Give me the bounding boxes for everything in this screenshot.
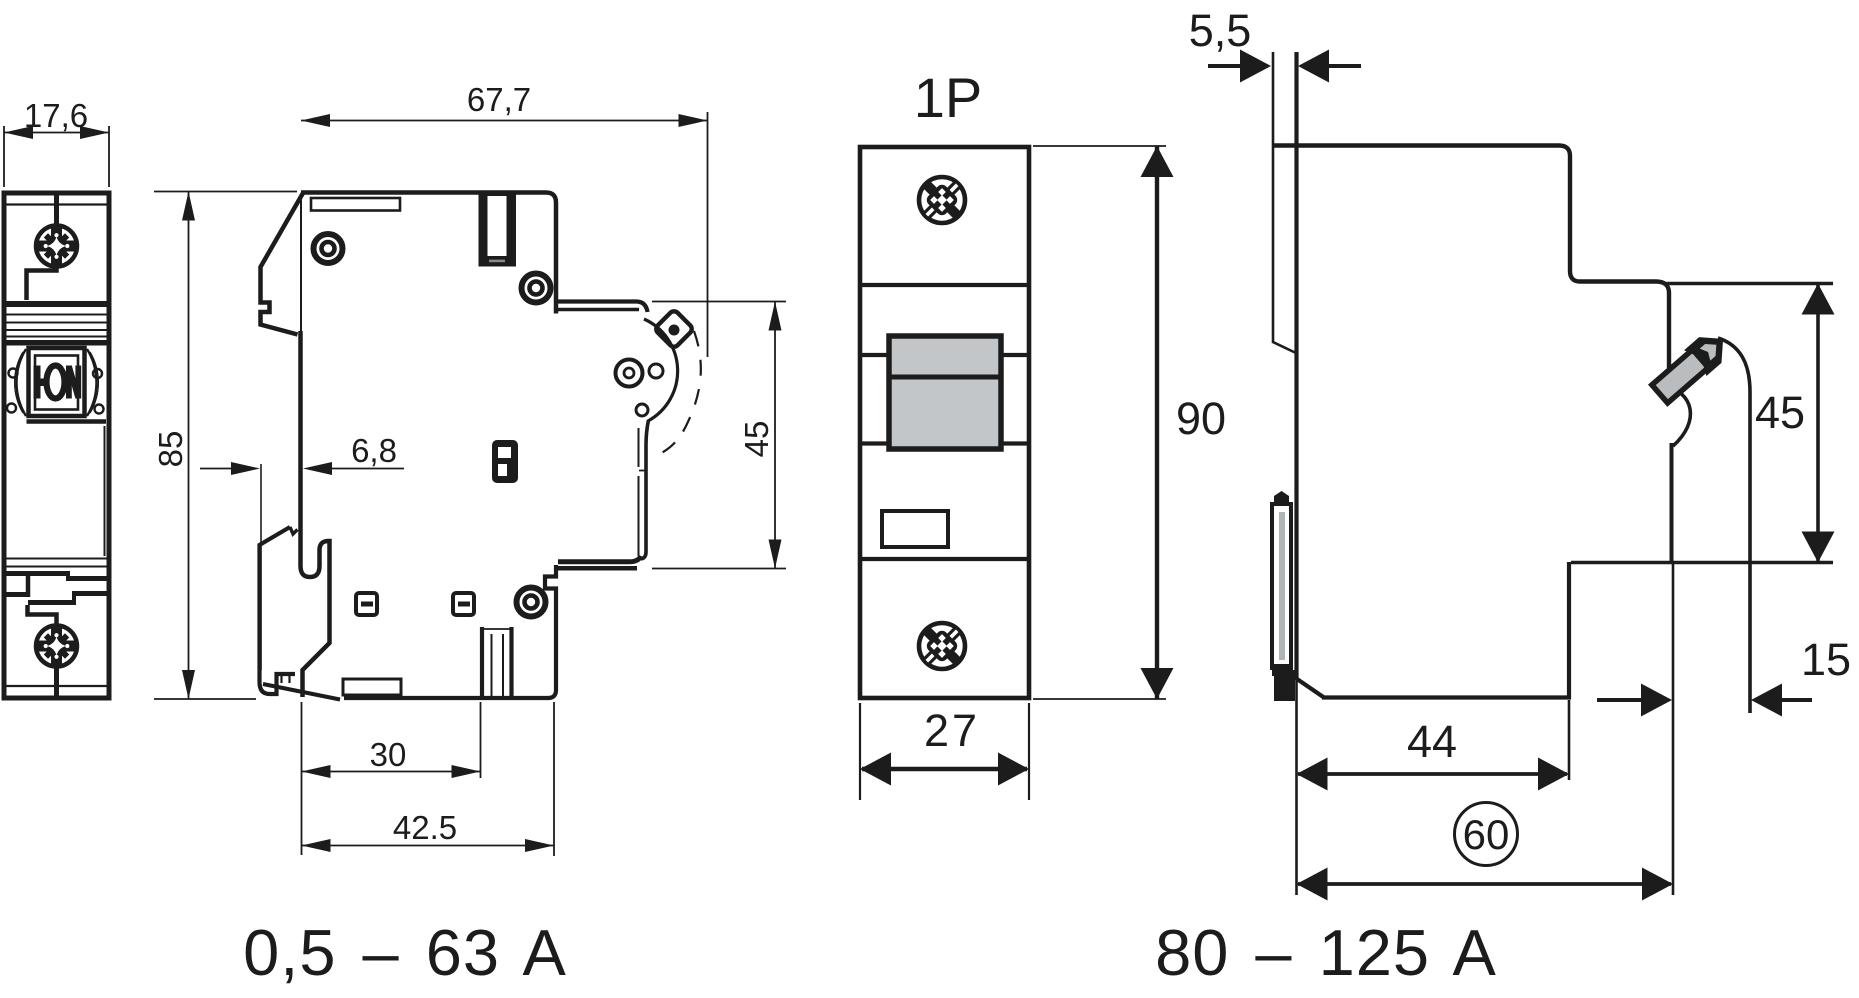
svg-text:15: 15 [1801, 634, 1851, 685]
svg-text:42.5: 42.5 [393, 809, 457, 846]
svg-text:5,5: 5,5 [1189, 5, 1252, 56]
svg-text:44: 44 [1407, 716, 1457, 767]
svg-text:6,8: 6,8 [351, 432, 397, 469]
svg-text:30: 30 [370, 736, 407, 773]
svg-text:45: 45 [1755, 387, 1805, 438]
svg-text:85: 85 [152, 431, 189, 468]
svg-text:60: 60 [1463, 811, 1510, 858]
svg-text:17,6: 17,6 [24, 97, 88, 134]
svg-text:0,5 – 63 A: 0,5 – 63 A [243, 916, 567, 989]
svg-text:67,7: 67,7 [467, 81, 531, 118]
svg-text:27: 27 [924, 705, 980, 756]
svg-text:90: 90 [1176, 393, 1226, 444]
svg-text:45: 45 [738, 421, 775, 458]
svg-text:1P: 1P [914, 66, 983, 129]
svg-text:80 – 125 A: 80 – 125 A [1155, 916, 1497, 989]
